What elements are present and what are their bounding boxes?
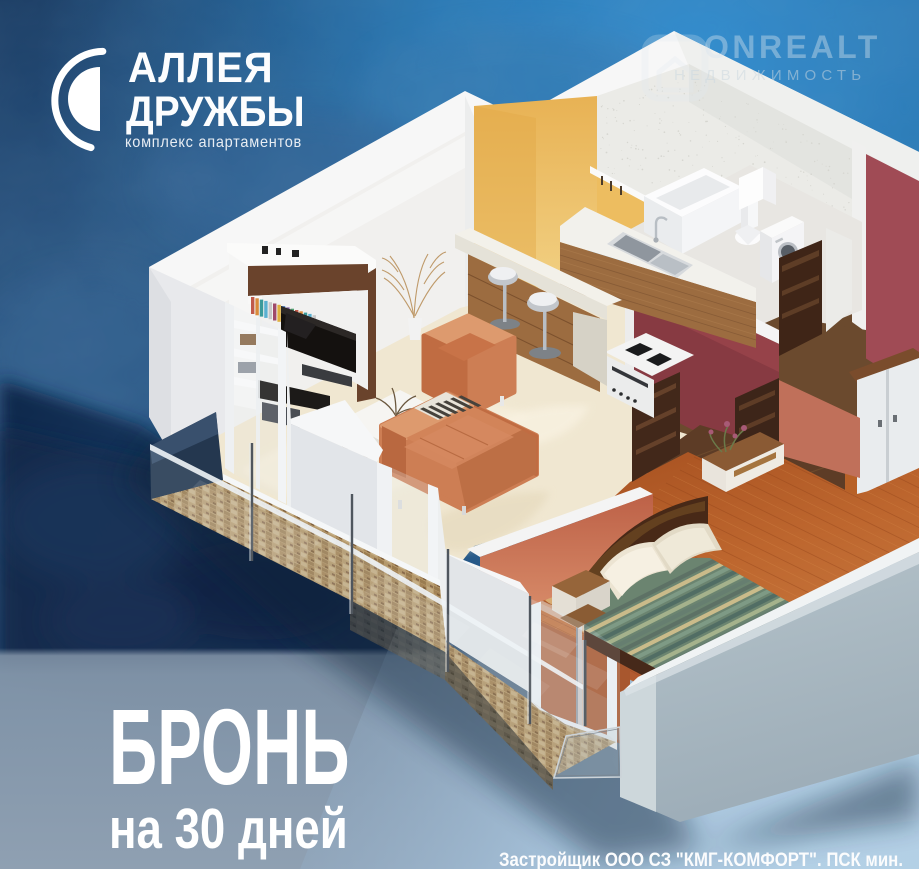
svg-text:ONREALT: ONREALT — [704, 29, 881, 65]
svg-text:на 30 дней: на 30 дней — [109, 796, 348, 860]
svg-text:АЛЛЕЯ: АЛЛЕЯ — [128, 43, 274, 92]
svg-text:ДРУЖБЫ: ДРУЖБЫ — [126, 87, 305, 135]
svg-text:Застройщик ООО СЗ "КМГ-КОМФОРТ: Застройщик ООО СЗ "КМГ-КОМФОРТ". ПСК мин… — [499, 850, 903, 869]
svg-text:НЕДВИЖИМОСТЬ: НЕДВИЖИМОСТЬ — [674, 67, 866, 84]
svg-text:БРОНЬ: БРОНЬ — [109, 688, 349, 808]
svg-text:комплекс апартаментов: комплекс апартаментов — [125, 133, 302, 151]
